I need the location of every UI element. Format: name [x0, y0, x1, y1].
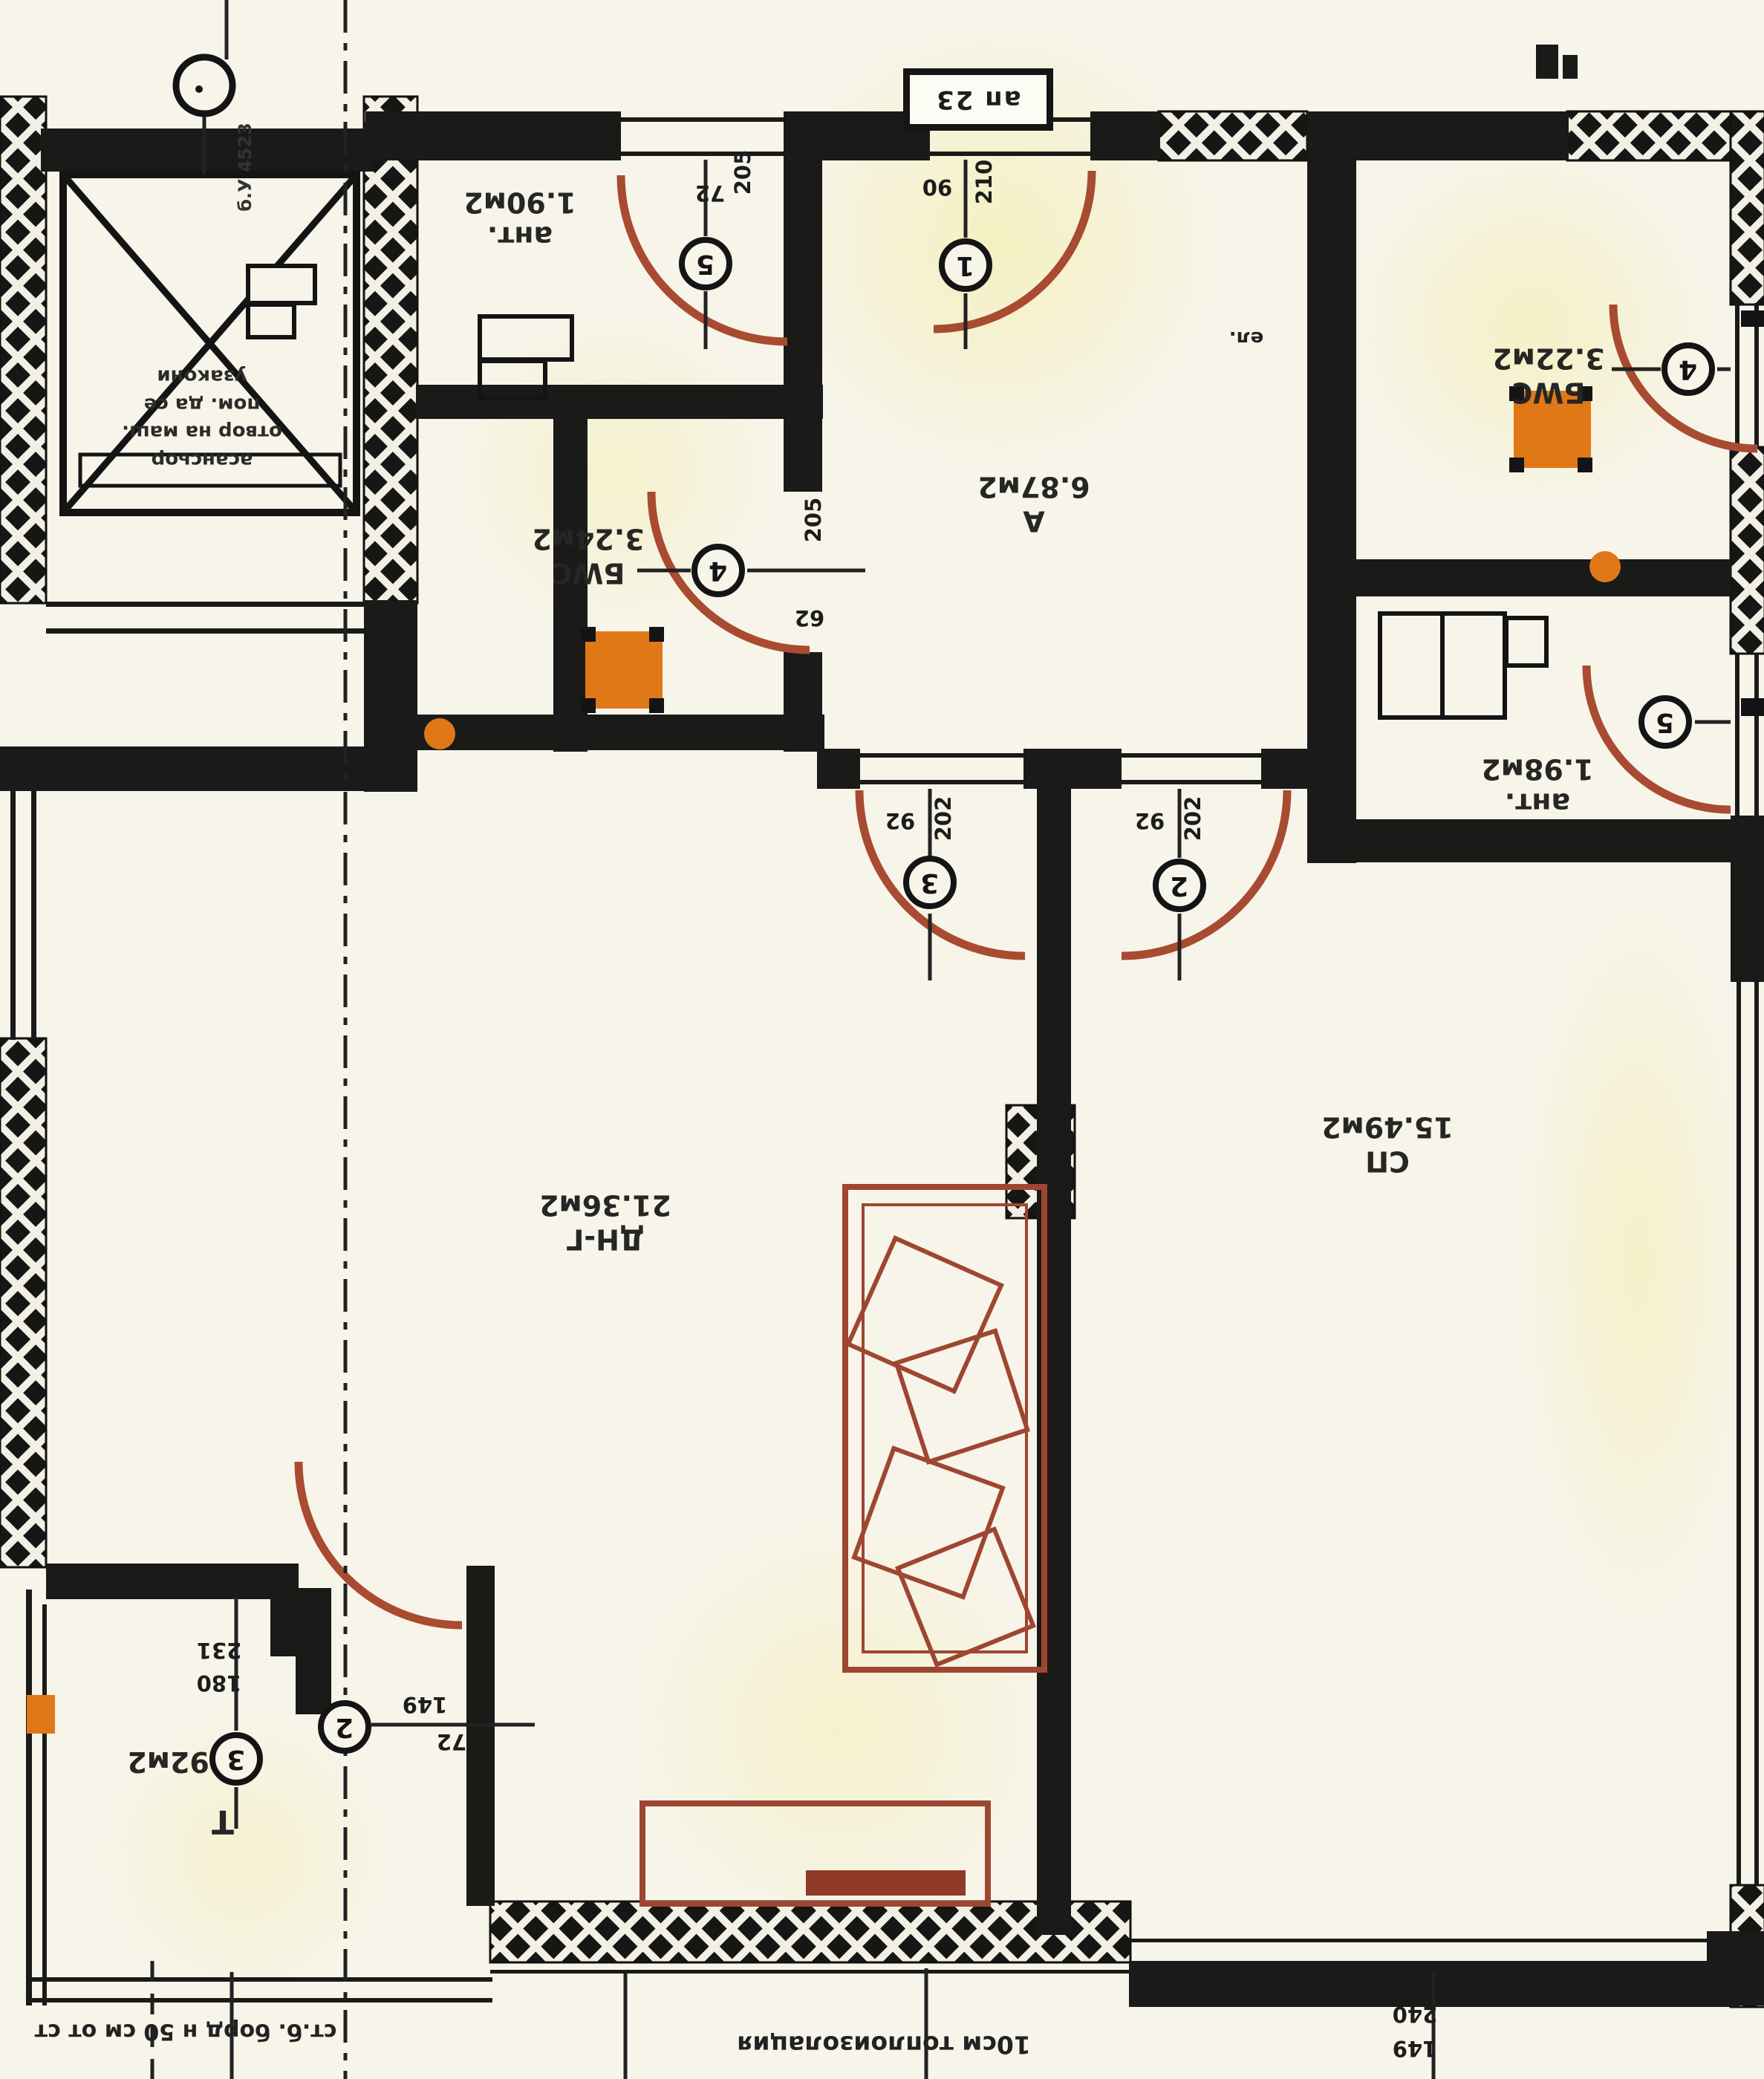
door3-height: 202	[931, 796, 956, 842]
orange-strip	[27, 1695, 55, 1734]
room-label-bath-left: БWC 3.24м2	[532, 521, 644, 590]
room-label-living: ДН-Г 21.36м2	[539, 1188, 671, 1257]
terrace-window-marker: 3	[209, 1732, 263, 1786]
marker-axes	[232, 160, 1731, 2079]
room-label-hall: А 6.87м2	[977, 469, 1090, 539]
door4l-height: 205	[801, 498, 826, 543]
riser-annotation: б.У 4523	[235, 123, 256, 212]
room-label-bath-right: БWC 3.22м2	[1492, 341, 1604, 410]
bottom-right-dim-b: 149	[1393, 2036, 1438, 2061]
door-marker-1: 1	[939, 238, 992, 292]
door-marker-4-right: 4	[1662, 342, 1715, 396]
room-label-entry-left: ант. 1.90м2	[463, 185, 576, 254]
electro-label: ел.	[1229, 327, 1264, 349]
door-marker-2: 2	[1153, 859, 1206, 912]
edge-mark	[1741, 310, 1764, 327]
bottom-left-note: ст.б. борд н 50 см от ст	[35, 2019, 337, 2045]
door5l-width: 72	[695, 180, 725, 206]
washer-left	[585, 631, 663, 709]
axis-circle	[176, 57, 232, 114]
door-marker-5-right: 5	[1638, 695, 1692, 749]
terrace-dim-b: 72	[437, 1729, 466, 1754]
fixtures	[27, 310, 1764, 1734]
room-label-entry-right: ант. 1.98м2	[1481, 752, 1593, 821]
terrace-door-height: 231	[197, 1638, 242, 1663]
cabinet	[642, 1803, 988, 1904]
plan-graphics	[0, 0, 1764, 2079]
door1-width: 90	[922, 175, 952, 200]
section-marker: 2	[318, 1700, 371, 1754]
elevator-note: асансьор отвор на маш. пом. да се узакон…	[68, 362, 336, 474]
room-label-bedroom: СП 15.49м2	[1321, 1110, 1454, 1179]
door1-height: 210	[971, 160, 997, 205]
door4l-width: 62	[795, 605, 824, 631]
door-marker-4-left: 4	[691, 544, 745, 597]
floor-plan-page: ап 23 ант. 1.90м2 БWC 3.24м2 А 6.87м2 БW…	[0, 0, 1764, 2079]
door2-width: 92	[1135, 808, 1165, 833]
apartment-number-box: ап 23	[903, 68, 1053, 131]
door-marker-3: 3	[903, 856, 957, 909]
room-label-terrace: Т	[212, 1801, 234, 1841]
lamp-dot	[1589, 551, 1621, 582]
terrace-dim-a: 149	[403, 1692, 448, 1717]
bottom-right-dim-a: 240	[1393, 2002, 1438, 2027]
door-marker-5-left: 5	[679, 237, 732, 290]
axis-circle-dot	[195, 85, 203, 93]
lamp-dot	[424, 718, 455, 749]
edge-mark	[1741, 698, 1764, 716]
bottom-center-note: 10см топлоизолация	[737, 2031, 1031, 2060]
sofa	[845, 1187, 1044, 1670]
door5l-height: 205	[730, 150, 755, 195]
door3-width: 92	[885, 808, 915, 833]
door2-height: 202	[1180, 796, 1205, 842]
terrace-door-width: 180	[197, 1670, 242, 1696]
apartment-number: ап 23	[935, 85, 1021, 114]
